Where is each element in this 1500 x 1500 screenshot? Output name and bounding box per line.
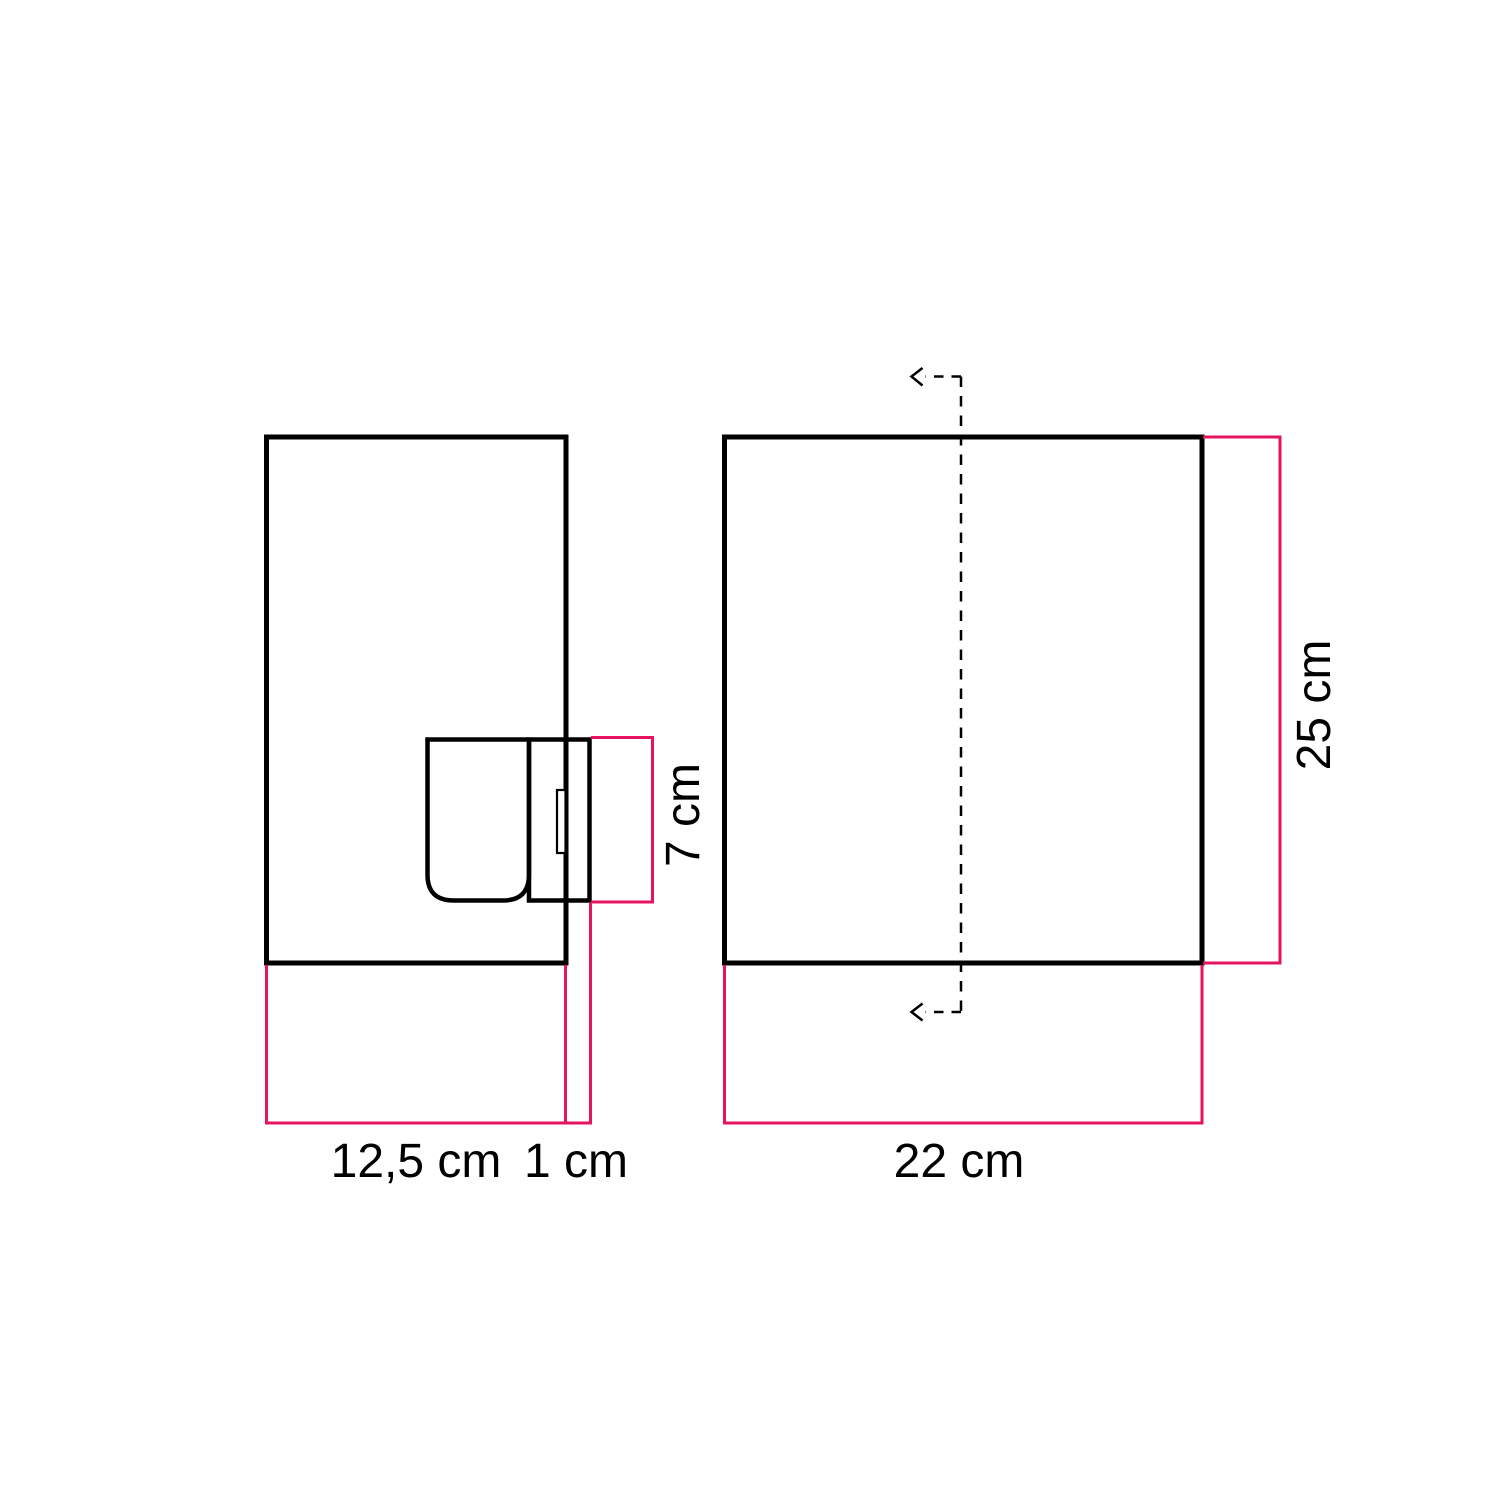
front-width-label: 22 cm	[894, 1135, 1025, 1188]
side-view	[265, 437, 653, 1123]
switch-slot	[557, 790, 566, 853]
side-width-label: 12,5 cm	[331, 1135, 502, 1188]
side-view-outline	[267, 437, 567, 963]
lamp-holder-body	[428, 740, 530, 901]
bottom-left-arrow-icon	[912, 1004, 923, 1021]
holder-height-dimension-bracket	[591, 738, 653, 903]
top-left-arrow-icon	[912, 368, 923, 386]
side-width-dimension-lines	[265, 903, 592, 1123]
dimension-diagram-page: 12,5 cm 1 cm 22 cm 7 cm 25 cm	[0, 0, 1500, 1500]
wall-offset-label: 1 cm	[524, 1135, 628, 1188]
front-height-label: 25 cm	[1288, 640, 1341, 771]
front-view-outline	[725, 437, 1203, 963]
front-view	[723, 368, 1280, 1123]
holder-height-label: 7 cm	[657, 763, 710, 867]
front-height-dimension-bracket	[1203, 437, 1280, 963]
lamp-dimension-diagram: 12,5 cm 1 cm 22 cm 7 cm 25 cm	[0, 0, 1500, 1500]
front-width-dimension-lines	[723, 965, 1204, 1123]
